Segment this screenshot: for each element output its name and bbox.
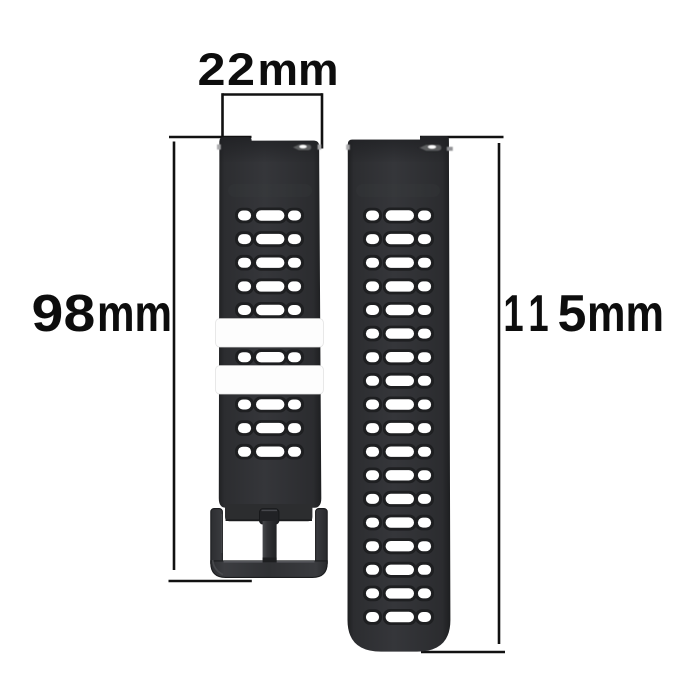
svg-text:mm: mm [587,285,664,343]
svg-text:mm: mm [258,44,339,95]
svg-text:5: 5 [558,285,587,343]
svg-text:1: 1 [528,283,548,342]
svg-text:2: 2 [198,45,226,95]
svg-text:1: 1 [503,283,523,342]
svg-text:mm: mm [97,285,172,343]
svg-text:8: 8 [64,284,96,342]
svg-text:2: 2 [227,45,255,95]
svg-text:9: 9 [32,284,64,342]
